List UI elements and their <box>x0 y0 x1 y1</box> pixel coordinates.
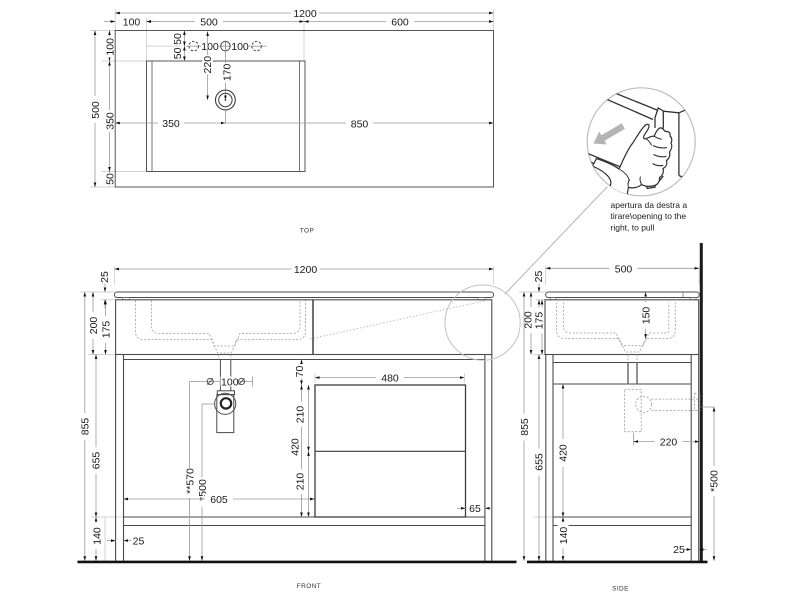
svg-text:140: 140 <box>91 527 103 545</box>
svg-text:350: 350 <box>162 118 180 130</box>
svg-text:655: 655 <box>90 452 102 470</box>
svg-text:100: 100 <box>201 41 219 53</box>
svg-text:600: 600 <box>391 17 409 29</box>
svg-text:500: 500 <box>615 263 633 275</box>
svg-text:*500: *500 <box>708 470 720 492</box>
svg-text:150: 150 <box>640 307 652 325</box>
svg-text:605: 605 <box>210 494 228 506</box>
svg-text:apertura da destra a: apertura da destra a <box>611 200 688 210</box>
svg-text:TOP: TOP <box>300 228 314 235</box>
svg-text:655: 655 <box>533 453 545 471</box>
svg-text:850: 850 <box>351 119 369 131</box>
svg-text:855: 855 <box>519 418 531 436</box>
svg-text:**570: **570 <box>184 468 196 494</box>
svg-text:50: 50 <box>172 47 184 59</box>
svg-text:200: 200 <box>88 317 100 335</box>
svg-text:25: 25 <box>533 271 545 283</box>
svg-text:FRONT: FRONT <box>297 583 321 590</box>
svg-text:100: 100 <box>123 17 141 29</box>
svg-text:140: 140 <box>558 527 570 545</box>
svg-text:350: 350 <box>104 112 116 130</box>
svg-text:480: 480 <box>381 373 399 385</box>
svg-text:50: 50 <box>104 173 116 185</box>
svg-text:855: 855 <box>80 418 92 436</box>
svg-text:220: 220 <box>660 436 678 448</box>
svg-text:175: 175 <box>100 321 112 339</box>
svg-text:tirare\opening to the: tirare\opening to the <box>611 211 687 221</box>
svg-text:65: 65 <box>469 503 481 515</box>
svg-text:50: 50 <box>172 33 184 45</box>
svg-text:220: 220 <box>202 56 214 74</box>
svg-text:1200: 1200 <box>293 8 317 20</box>
svg-text:210: 210 <box>294 473 306 491</box>
svg-text:175: 175 <box>533 312 545 330</box>
svg-text:420: 420 <box>557 444 569 462</box>
svg-text:25: 25 <box>673 544 685 556</box>
svg-text:25: 25 <box>133 536 145 548</box>
svg-text:500: 500 <box>200 17 218 29</box>
svg-text:SIDE: SIDE <box>612 586 629 593</box>
svg-text:100: 100 <box>104 38 116 56</box>
svg-text:420: 420 <box>290 438 302 456</box>
svg-text:500: 500 <box>90 101 102 119</box>
svg-text:170: 170 <box>221 63 233 81</box>
svg-text:1200: 1200 <box>294 264 318 276</box>
svg-text:25: 25 <box>99 271 111 283</box>
svg-text:100: 100 <box>221 377 239 389</box>
svg-text:210: 210 <box>294 406 306 424</box>
svg-text:right, to pull: right, to pull <box>611 222 655 232</box>
svg-text:70: 70 <box>294 366 306 378</box>
svg-text:100: 100 <box>231 41 249 53</box>
